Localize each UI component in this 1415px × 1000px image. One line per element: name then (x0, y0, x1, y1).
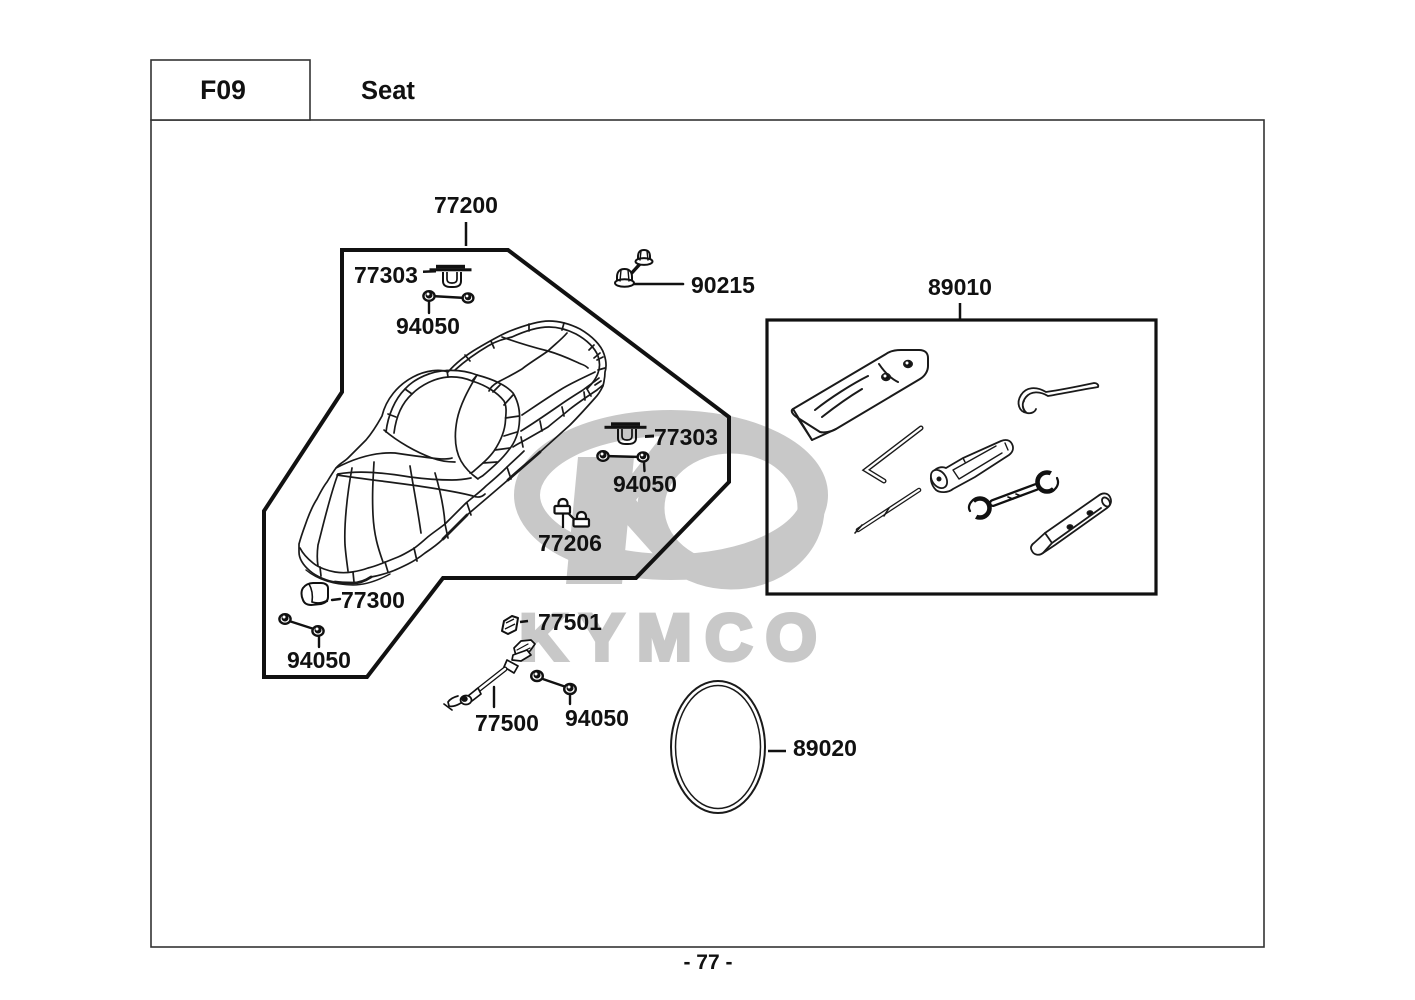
svg-text:89010: 89010 (928, 274, 992, 300)
svg-text:90215: 90215 (691, 272, 755, 298)
svg-text:94050: 94050 (613, 471, 677, 497)
svg-text:94050: 94050 (565, 705, 629, 731)
svg-text:77200: 77200 (434, 192, 498, 218)
svg-text:94050: 94050 (287, 647, 351, 673)
svg-text:- 77 -: - 77 - (683, 951, 732, 974)
svg-text:F09: F09 (200, 75, 246, 105)
svg-text:77303: 77303 (654, 424, 718, 450)
svg-text:77303: 77303 (354, 262, 418, 288)
svg-text:77300: 77300 (341, 587, 405, 613)
svg-text:77501: 77501 (538, 609, 602, 635)
svg-text:Seat: Seat (361, 77, 415, 105)
svg-text:77500: 77500 (475, 710, 539, 736)
svg-text:77206: 77206 (538, 530, 602, 556)
svg-text:89020: 89020 (793, 735, 857, 761)
svg-text:94050: 94050 (396, 313, 460, 339)
